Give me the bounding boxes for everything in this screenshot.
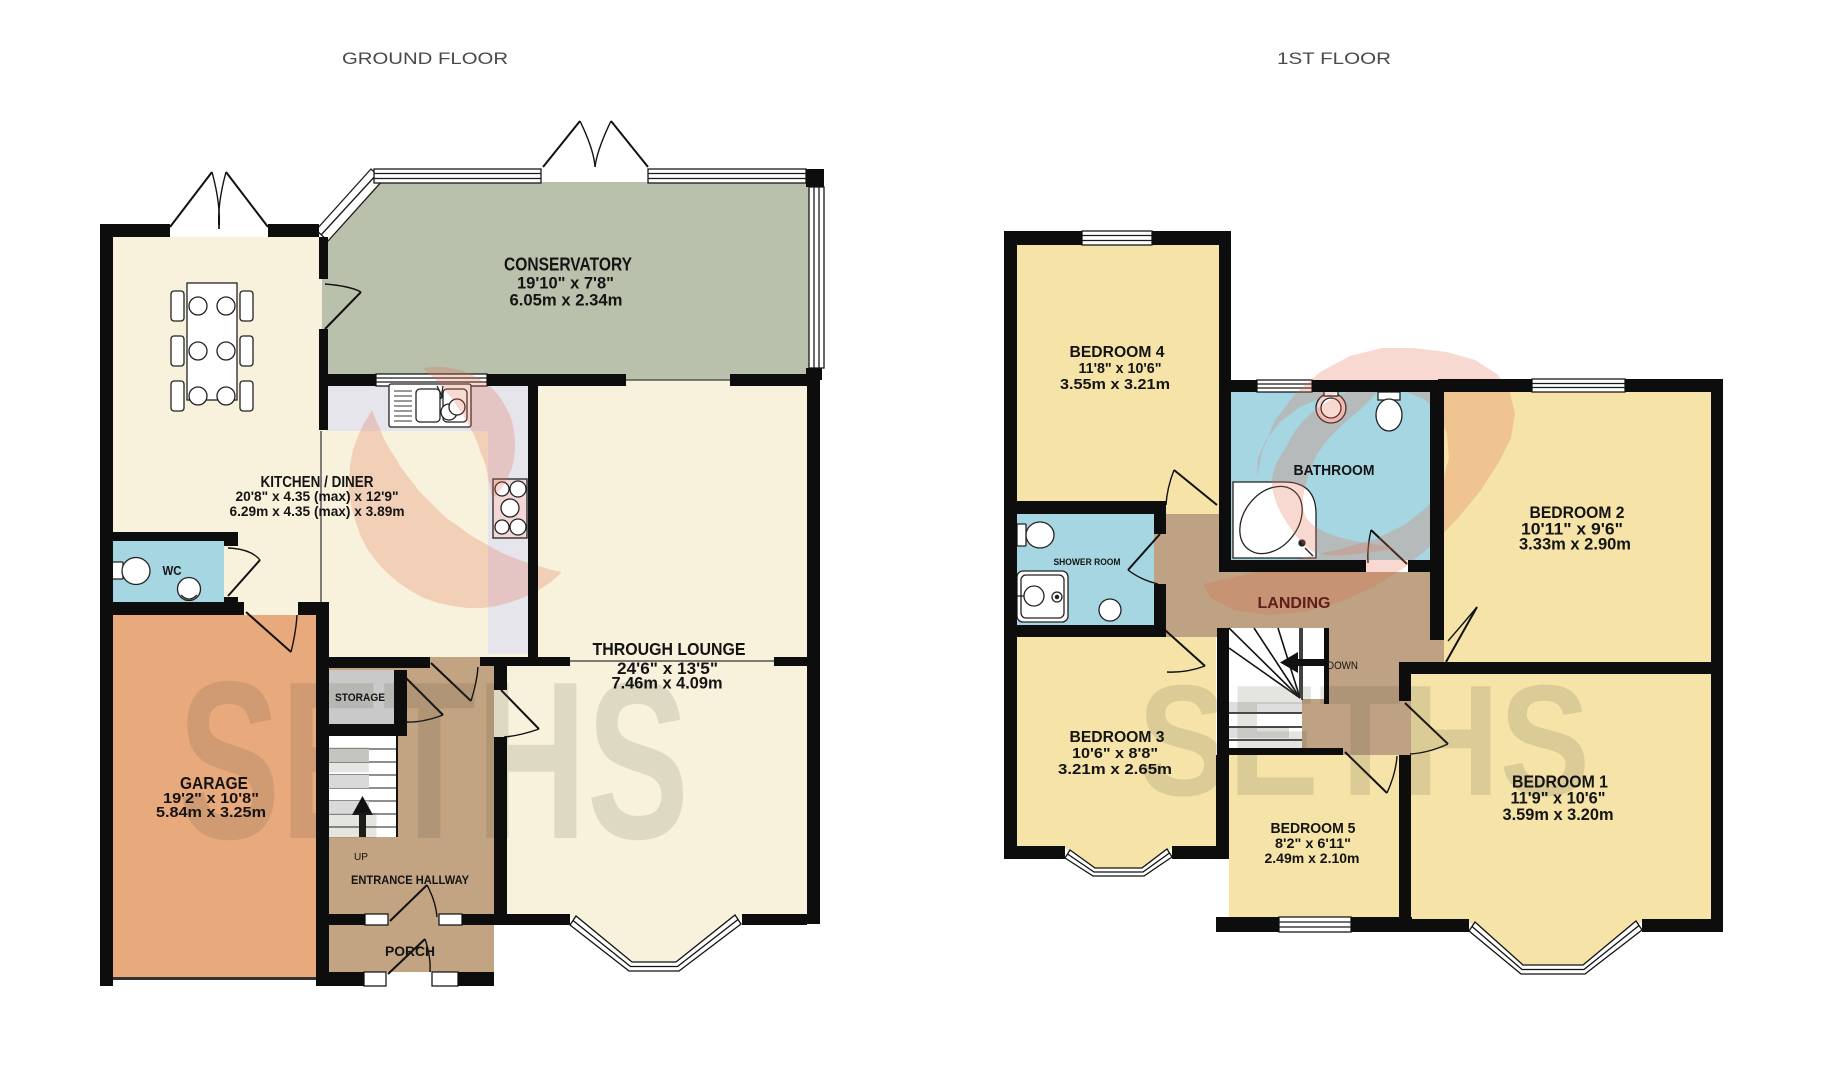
svg-text:WC: WC bbox=[163, 563, 183, 578]
svg-text:6.05m x 2.34m: 6.05m x 2.34m bbox=[510, 291, 623, 310]
svg-text:3.59m x 3.20m: 3.59m x 3.20m bbox=[1503, 805, 1614, 824]
svg-text:10'6" x 8'8": 10'6" x 8'8" bbox=[1072, 745, 1158, 762]
svg-text:7.46m x 4.09m: 7.46m x 4.09m bbox=[612, 674, 723, 693]
svg-text:CONSERVATORY: CONSERVATORY bbox=[504, 255, 632, 275]
svg-text:UP: UP bbox=[354, 851, 368, 863]
svg-text:1ST FLOOR: 1ST FLOOR bbox=[1277, 49, 1391, 68]
svg-text:STORAGE: STORAGE bbox=[335, 692, 385, 704]
svg-text:SHOWER ROOM: SHOWER ROOM bbox=[1054, 557, 1121, 568]
svg-text:ENTRANCE HALLWAY: ENTRANCE HALLWAY bbox=[351, 873, 469, 887]
svg-text:3.21m x 2.65m: 3.21m x 2.65m bbox=[1058, 761, 1172, 778]
svg-text:3.55m x 3.21m: 3.55m x 3.21m bbox=[1060, 376, 1170, 393]
svg-text:PORCH: PORCH bbox=[385, 944, 435, 959]
svg-text:2.49m x 2.10m: 2.49m x 2.10m bbox=[1265, 850, 1360, 866]
svg-text:BEDROOM 4: BEDROOM 4 bbox=[1070, 344, 1165, 361]
svg-text:11'8" x 10'6": 11'8" x 10'6" bbox=[1079, 360, 1162, 377]
svg-text:20'8" x 4.35 (max) x 12'9": 20'8" x 4.35 (max) x 12'9" bbox=[236, 488, 399, 504]
svg-text:BEDROOM 2: BEDROOM 2 bbox=[1530, 503, 1625, 522]
svg-text:BATHROOM: BATHROOM bbox=[1294, 463, 1375, 479]
svg-text:SETHS: SETHS bbox=[178, 634, 689, 886]
svg-text:3.33m x 2.90m: 3.33m x 2.90m bbox=[1519, 536, 1631, 554]
svg-text:THROUGH LOUNGE: THROUGH LOUNGE bbox=[593, 639, 746, 659]
svg-text:LANDING: LANDING bbox=[1258, 595, 1331, 612]
svg-text:6.29m x 4.35 (max) x 3.89m: 6.29m x 4.35 (max) x 3.89m bbox=[230, 503, 405, 519]
svg-text:5.84m x 3.25m: 5.84m x 3.25m bbox=[156, 804, 266, 821]
svg-text:BEDROOM 3: BEDROOM 3 bbox=[1070, 729, 1165, 746]
svg-text:GROUND FLOOR: GROUND FLOOR bbox=[342, 49, 508, 68]
svg-text:DOWN: DOWN bbox=[1327, 660, 1358, 672]
svg-text:8'2" x 6'11": 8'2" x 6'11" bbox=[1275, 835, 1351, 851]
